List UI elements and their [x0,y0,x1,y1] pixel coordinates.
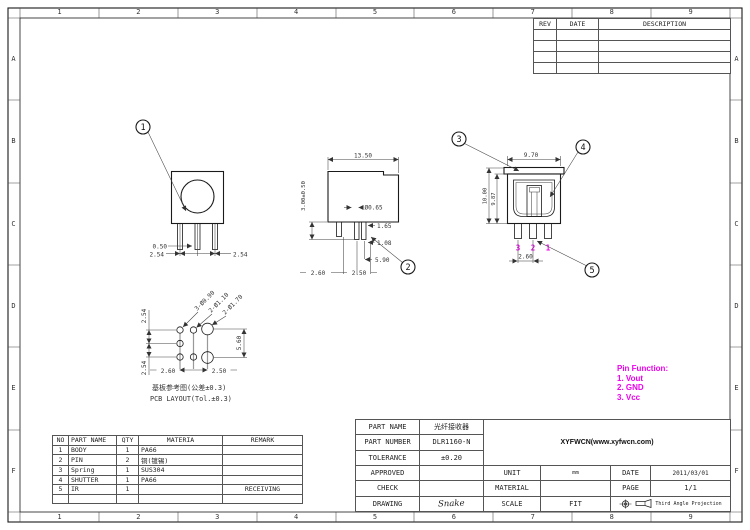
rear-body [508,174,561,224]
parts-header-qty: QTY [117,436,139,446]
rev-cell [557,30,599,41]
rev-cell [534,41,557,52]
pcb-leader [197,314,213,328]
pin-function-item: 2. GND [617,383,668,393]
parts-row: 5 IR 1 RECEIVING [53,485,303,495]
parts-cell-no: 3 [53,466,69,476]
parts-row: 1 BODY 1 PA66 [53,445,303,455]
parts-cell-material [139,494,223,504]
dim-rear-pin-pitch: 2.60 [518,254,533,261]
parts-cell-remark [223,455,303,466]
title-part-number-value: DLR1160-N [420,435,484,450]
title-approved-value [420,465,484,480]
pcb-hole-big [202,323,214,335]
company-name: XYFWCN(www.xyfwcn.com) [484,420,731,466]
side-pin [362,222,367,240]
projection-cell: Third Angle Projection [613,499,728,509]
parts-cell-no [53,494,69,504]
front-dim-ext [180,250,215,256]
title-page-value: 1/1 [651,481,731,496]
parts-cell-material: 铜(镀锡) [139,455,223,466]
title-unit-label: UNIT [484,465,541,480]
side-dim-ext [344,237,371,274]
side-view: 13.50 3.00±0.50 Ø0.65 1.65 1.08 5.90 2.6… [300,153,415,278]
dim-side-c: 5.90 [375,257,390,264]
rev-cell [534,52,557,63]
pcb-hole-small [190,327,196,333]
dim-pcb-h1: 2.60 [161,368,176,375]
title-check-label: CHECK [356,481,420,496]
pcb-caption-en: PCB LAYOUT(Tol.±0.3) [150,395,232,403]
revision-table: REV DATE DESCRIPTION [533,18,731,74]
parts-cell-name: Spring [69,466,117,476]
title-approved-label: APPROVED [356,465,420,480]
title-date-label: DATE [611,465,651,480]
pcb-caption-cn: 基板参考图(公差±0.3) [152,383,226,392]
title-tolerance-value: ±0.20 [420,450,484,465]
parts-cell-remark [223,445,303,455]
title-check-value [420,481,484,496]
rev-cell [599,41,731,52]
pcb-dim-ext [146,330,176,357]
revision-row [534,52,731,63]
balloon-5-leader [537,241,586,266]
parts-header-row: NO PART NAME QTY MATERIA REMARK [53,436,303,446]
parts-cell-qty: 1 [117,466,139,476]
title-drawing-label: DRAWING [356,496,420,511]
balloon-5-number: 5 [589,266,594,276]
side-pin [355,222,360,240]
dim-pcb-pitch-bottom: 2.54 [141,360,148,375]
side-leg [337,222,342,237]
pin-function-note: Pin Function: 1. Vout 2. GND 3. Vcc [617,364,668,402]
dim-side-width: 13.50 [354,153,372,160]
rev-cell [599,30,731,41]
dim-side-d: 2.60 [311,270,326,277]
balloon-3-leader [465,144,520,172]
dim-pcb-span: 5.60 [236,335,243,350]
revision-row [534,63,731,74]
parts-cell-qty: 1 [117,485,139,495]
parts-table: NO PART NAME QTY MATERIA REMARK 1 BODY 1… [52,435,303,504]
dim-side-a: 1.65 [377,223,392,230]
revision-row [534,30,731,41]
rev-cell [534,30,557,41]
parts-cell-name: SHUTTER [69,475,117,485]
parts-row: 3 Spring 1 SUS304 [53,466,303,476]
rev-cell [557,41,599,52]
title-unit-value: mm [541,465,611,480]
parts-cell-material: SUS304 [139,466,223,476]
title-material-value [541,481,611,496]
title-part-name-label: PART NAME [356,420,420,435]
parts-cell-no: 5 [53,485,69,495]
pin-number-1: 1 [546,244,551,253]
balloon-4-number: 4 [580,143,585,153]
parts-cell-qty: 1 [117,475,139,485]
projection-target-icon [619,499,632,509]
title-block: PART NAME 光纤接收器 XYFWCN(www.xyfwcn.com) P… [355,419,731,512]
title-drawing-signature: Snake [438,498,465,509]
title-part-name-value: 光纤接收器 [420,420,484,435]
parts-cell-no: 4 [53,475,69,485]
parts-cell-material [139,485,223,495]
parts-cell-qty: 1 [117,445,139,455]
parts-cell-name: BODY [69,445,117,455]
parts-row: 2 PIN 2 铜(镀锡) [53,455,303,466]
rev-cell [557,52,599,63]
parts-cell-material: PA66 [139,445,223,455]
rear-pin [545,224,552,239]
dim-rear-height-inner: 9.87 [491,192,497,205]
pcb-leader [212,316,226,325]
front-view: 1 0.50 2.54 2.54 [136,120,248,259]
rev-header-description: DESCRIPTION [599,19,731,30]
pcb-layout-view: 3-Ø0.90 2-Ø1.10 2-Ø1.70 2.54 2.54 5.60 2… [141,289,247,403]
dim-side-e: 2.50 [352,270,367,277]
dim-pcb-h2: 2.50 [212,368,227,375]
parts-cell-name: PIN [69,455,117,466]
pcb-leader [183,312,198,327]
pcb-ext-drops [180,333,208,369]
rear-view: 3 2 1 9.70 10.00 9.87 2.60 3 4 [452,132,599,277]
rev-cell [599,63,731,74]
parts-cell-remark: RECEIVING [223,485,303,495]
balloon-1-number: 1 [140,123,145,133]
dim-pcb-pitch-top: 2.54 [141,308,148,323]
parts-cell-name [69,494,117,504]
pcb-hole-small [177,327,183,333]
parts-cell-no: 1 [53,445,69,455]
parts-header-remark: REMARK [223,436,303,446]
rev-cell [557,63,599,74]
rear-pin [530,224,537,239]
balloon-3-number: 3 [456,135,461,145]
drawing-sheet: 123456789 123456789 ABCDEF ABCDEF [0,0,750,530]
dim-side-pin-length: 3.00±0.50 [301,181,307,211]
parts-row [53,494,303,504]
parts-cell-remark [223,494,303,504]
dim-front-pitch-left: 2.54 [150,252,165,259]
rev-cell [599,52,731,63]
parts-header-materia: MATERIA [139,436,223,446]
front-pin-hatch [180,224,215,249]
rear-pin [515,224,522,239]
dim-front-pitch-right: 2.54 [233,252,248,259]
parts-cell-name: IR [69,485,117,495]
side-body [328,172,399,223]
rear-cap [504,168,564,175]
title-scale-label: SCALE [484,496,541,511]
side-dim-ext [309,222,354,240]
title-date-value: 2011/03/01 [651,465,731,480]
title-material-label: MATERIAL [484,481,541,496]
pin-function-item: 3. Vcc [617,393,668,403]
parts-cell-remark [223,466,303,476]
revision-row [534,41,731,52]
parts-cell-qty: 2 [117,455,139,466]
dim-front-pin-width: 0.50 [153,244,168,251]
balloon-2-number: 2 [405,263,410,273]
pin-function-title: Pin Function: [617,364,668,374]
rev-cell [534,63,557,74]
dim-side-pin-dia: Ø0.65 [365,205,383,212]
title-tolerance-label: TOLERANCE [356,450,420,465]
parts-header-no: NO [53,436,69,446]
parts-header-part-name: PART NAME [69,436,117,446]
pin-function-item: 1. Vout [617,374,668,384]
parts-cell-material: PA66 [139,475,223,485]
projection-label: Third Angle Projection [655,501,721,507]
rev-header-date: DATE [557,19,599,30]
parts-cell-no: 2 [53,455,69,466]
projection-cone-icon [635,499,652,508]
title-page-label: PAGE [611,481,651,496]
title-part-number-label: PART NUMBER [356,435,420,450]
title-scale-value: FIT [541,496,611,511]
parts-row: 4 SHUTTER 1 PA66 [53,475,303,485]
rev-header-rev: REV [534,19,557,30]
parts-cell-remark [223,475,303,485]
dim-rear-height-outer: 10.00 [483,188,489,205]
parts-cell-qty [117,494,139,504]
dim-rear-width: 9.70 [524,152,539,159]
